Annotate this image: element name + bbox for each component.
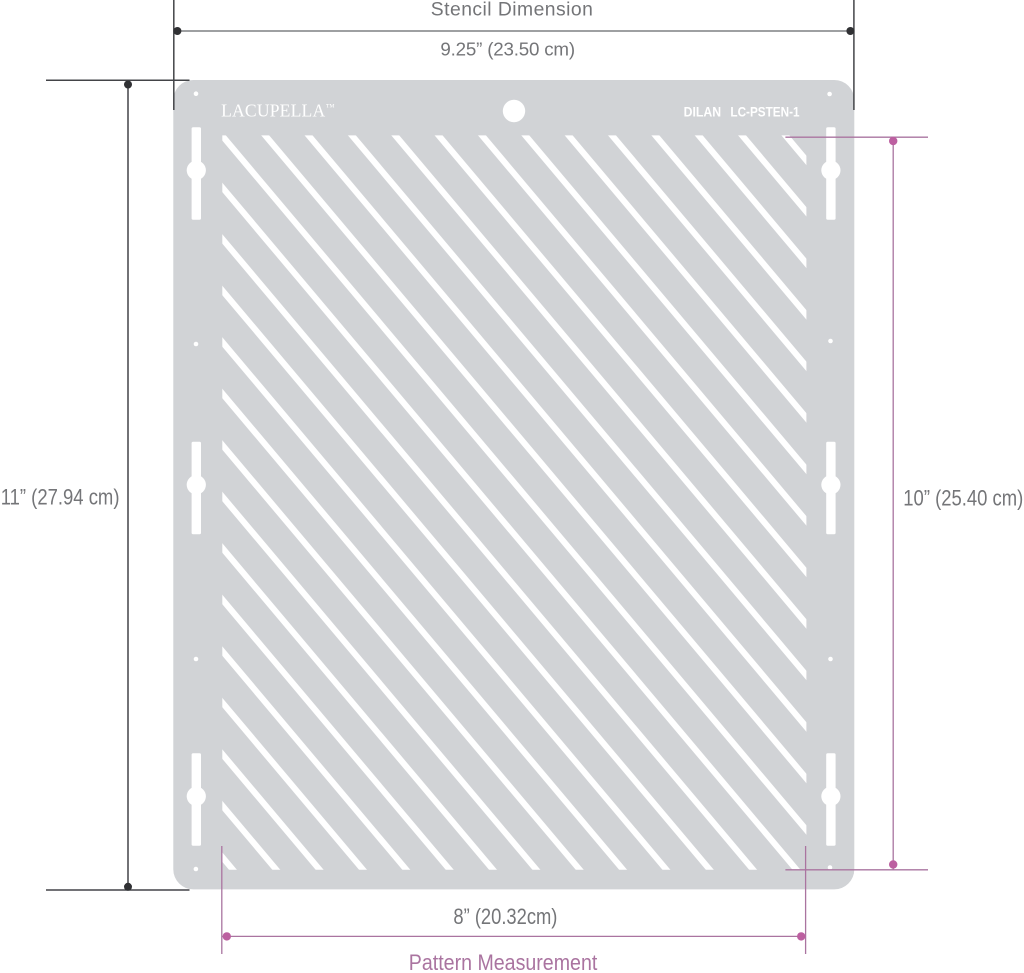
svg-text:Pattern Measurement: Pattern Measurement	[409, 951, 598, 973]
svg-text:11” (27.94 cm): 11” (27.94 cm)	[1, 485, 120, 510]
svg-text:10” (25.40 cm): 10” (25.40 cm)	[903, 486, 1023, 511]
svg-text:8” (20.32cm): 8” (20.32cm)	[453, 906, 557, 930]
svg-text:9.25” (23.50 cm): 9.25” (23.50 cm)	[440, 38, 575, 59]
svg-text:LC-PSTEN-1: LC-PSTEN-1	[730, 105, 799, 120]
svg-text:™: ™	[326, 102, 335, 112]
svg-text:Stencil Dimension: Stencil Dimension	[431, 0, 594, 21]
svg-text:DILAN: DILAN	[684, 104, 721, 120]
svg-text:LACUPELLA: LACUPELLA	[221, 101, 325, 121]
